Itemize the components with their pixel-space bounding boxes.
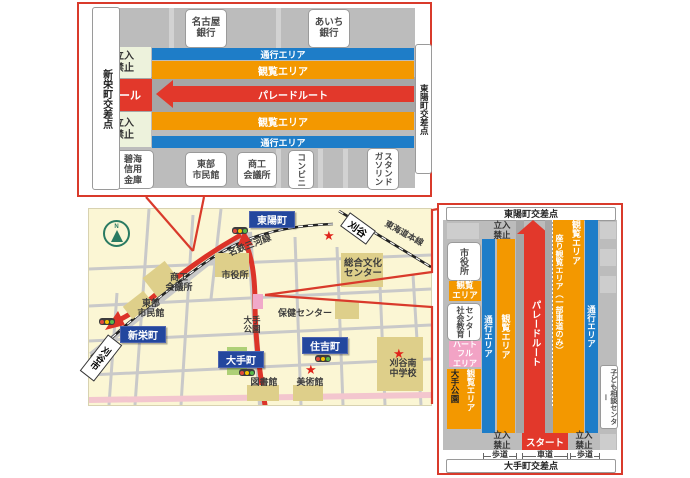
side-street-gap	[169, 8, 174, 49]
traffic-light-icon	[99, 318, 115, 325]
map-label-ote-park: 大手 公園	[237, 316, 267, 334]
ote-park-label: 大手公園	[449, 369, 461, 429]
traffic-light-icon	[315, 355, 331, 362]
building-gas-station: ガソリン スタンド	[367, 148, 399, 190]
heartful-area-marker	[253, 294, 263, 309]
intersection-toyocho: 東陽町交差点	[446, 207, 616, 221]
intersection-shinsakae: 新栄町交差点	[92, 7, 120, 190]
passage-area-band-top: 通行エリア	[152, 48, 414, 60]
traffic-light-icon	[232, 227, 248, 234]
heartful-area-label: ハート フル エリア	[449, 341, 481, 367]
viewing-area-band-bottom: 観覧エリア	[152, 112, 414, 130]
viewing-area-label: 観覧エリア	[465, 369, 477, 429]
star-icon: ★	[305, 363, 317, 376]
building-city-hall: 市役所	[447, 242, 481, 281]
label-shinsakae: 新栄町	[120, 326, 166, 343]
building-aichi-bank: あいち 銀行	[308, 9, 350, 48]
no-entry-bottom-left: 立入 禁止	[488, 432, 516, 450]
compass-icon: N	[103, 220, 130, 247]
sidewalk-label: 歩道	[576, 451, 594, 459]
label-sumiyoshicho: 住吉町	[302, 337, 348, 354]
side-street-gap	[318, 149, 323, 188]
intersection-toyocho: 東陽町交差点	[415, 44, 432, 174]
ote-park-viewing-area: 大手公園 観覧エリア	[447, 369, 481, 429]
building-block	[600, 222, 616, 239]
no-entry-bottom-right: 立入 禁止	[570, 432, 598, 450]
map-label-city-hall: 市役所	[215, 271, 255, 281]
side-street-gap	[276, 8, 281, 49]
parade-route-band: パレードルート	[524, 233, 545, 433]
map-label-museum: 美術館	[293, 378, 327, 388]
star-icon: ★	[393, 347, 405, 360]
seated-viewing-label: 座り観覧エリア（一部車道のみ）	[554, 234, 565, 354]
building-civic-hall: 東部 市民館	[185, 152, 227, 187]
building-chamber: 商工 会議所	[237, 152, 277, 187]
bracket-sidewalk-right: 歩道	[570, 450, 600, 459]
building-health-center	[335, 301, 359, 319]
north-arrow-icon	[111, 230, 123, 242]
parade-route-infographic: 名古屋 銀行 あいち 銀行 立入 禁止 立入 禁止 通行エリア 観覧エリア 観覧…	[0, 0, 690, 478]
viewing-area-label: 観覧 エリア	[449, 281, 481, 301]
intersection-otemachi: 大手町交差点	[446, 459, 616, 473]
parade-arrow-head-icon	[156, 80, 173, 108]
viewing-area-band-left: 観覧エリア	[497, 239, 515, 433]
bracket-sidewalk-left: 歩道	[483, 450, 517, 459]
viewing-area-band-top: 観覧エリア	[152, 61, 414, 79]
city-map: N 名鉄三河線 東海道本線 刈谷 刈谷市 東陽町 新栄町 大手町 住吉町 商工 …	[88, 208, 432, 406]
map-label-school: 刈谷南 中学校	[385, 359, 421, 378]
viewing-area-label: 観覧エリア	[570, 220, 583, 433]
seated-viewing-area-band: 座り観覧エリア（一部車道のみ） 観覧エリア	[553, 220, 584, 433]
building-social-education-center: 社会教育 センター	[447, 303, 481, 341]
building-nagoya-bank: 名古屋 銀行	[185, 9, 227, 48]
building-block	[600, 249, 616, 266]
label-otemachi: 大手町	[218, 351, 264, 368]
map-label-culture-center: 総合文化 センター	[341, 259, 385, 280]
label-toyocho: 東陽町	[249, 211, 295, 228]
traffic-light-icon	[239, 369, 255, 376]
map-label-health-center: 保健センター	[273, 309, 337, 319]
map-label-library: 図書館	[247, 378, 281, 388]
right-street-diagram: 東陽町交差点 大手町交差点 市役所 観覧 エリア 社会教育 センター ハート フ…	[437, 203, 623, 475]
top-street-diagram: 名古屋 銀行 あいち 銀行 立入 禁止 立入 禁止 通行エリア 観覧エリア 観覧…	[77, 2, 432, 197]
building-child-center: 子ども相談センター	[600, 365, 618, 429]
building-block	[447, 223, 479, 239]
roadway-label: 車道	[536, 451, 554, 459]
passage-area-band-left: 通行エリア	[482, 239, 495, 433]
side-street-gap	[343, 149, 348, 188]
passage-area-band-right: 通行エリア	[585, 220, 598, 433]
star-icon: ★	[323, 229, 335, 242]
sidewalk-label: 歩道	[491, 451, 509, 459]
building-block	[600, 276, 616, 293]
no-entry-top: 立入 禁止	[488, 221, 516, 240]
building-convenience: コンビニ	[288, 150, 314, 189]
roadway-strip	[516, 220, 524, 433]
compass-north-label: N	[105, 224, 128, 230]
map-label-chamber: 商工 会議所	[159, 273, 199, 292]
map-label-civic-hall: 東部 市民館	[131, 299, 171, 318]
parade-route-band: パレードルート	[172, 86, 414, 102]
start-box: スタート	[522, 433, 568, 450]
bracket-roadway: 車道	[522, 450, 568, 459]
building-block	[600, 434, 616, 450]
passage-area-band-bottom: 通行エリア	[152, 136, 414, 148]
